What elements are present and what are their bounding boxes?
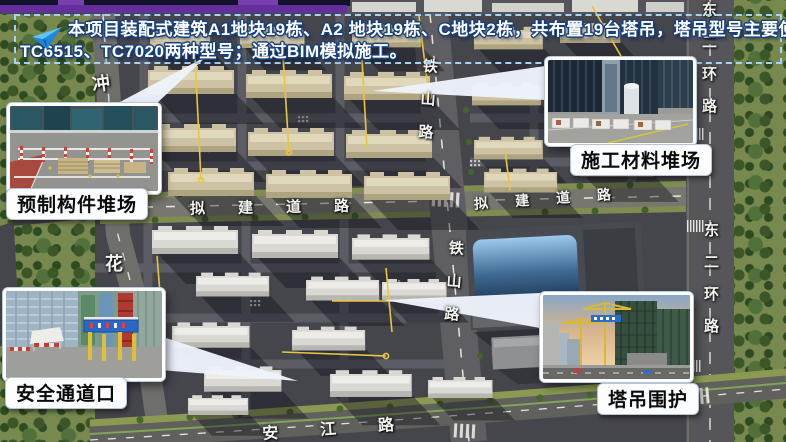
road-label-ring-lower: 东二环路 <box>700 222 721 350</box>
inset-precast-yard <box>7 103 161 194</box>
callout-label-material: 施工材料堆场 <box>570 144 712 176</box>
inset-material-yard <box>545 57 696 146</box>
callout-label-precast-text: 预制构件堆场 <box>17 195 137 216</box>
inset-crane-enclosure <box>540 292 693 382</box>
road-label-chong: 冲 <box>90 69 111 97</box>
callout-label-crane: 塔吊围护 <box>597 383 699 415</box>
material-yard-photo <box>548 60 693 143</box>
callout-label-crane-text: 塔吊围护 <box>608 390 688 411</box>
road-label-hua: 花 <box>105 250 123 276</box>
callout-label-material-text: 施工材料堆场 <box>581 151 701 172</box>
slide-header-purple-bar <box>0 5 347 13</box>
crane-enclosure-photo <box>543 295 690 379</box>
inset-safety-passage <box>3 288 165 381</box>
paper-plane-icon <box>30 24 64 52</box>
callout-label-safety-text: 安全通道口 <box>16 384 116 405</box>
banner-text-line1: 本项目装配式建筑A1地块19栋、A2 地块19栋、C地块2栋，共布置19台塔吊，… <box>16 16 780 40</box>
callout-label-precast: 预制构件堆场 <box>6 188 148 220</box>
safety-passage-photo <box>6 291 162 378</box>
callout-label-safety: 安全通道口 <box>5 377 127 409</box>
road-label-nijian-west: 拟建道路 <box>190 194 382 218</box>
precast-yard-photo <box>10 106 158 191</box>
slide: 铁山路 铁山路 东二环路 东二环路 拟建道路 拟建道路 安江路 花 冲 本项目装… <box>0 0 786 442</box>
